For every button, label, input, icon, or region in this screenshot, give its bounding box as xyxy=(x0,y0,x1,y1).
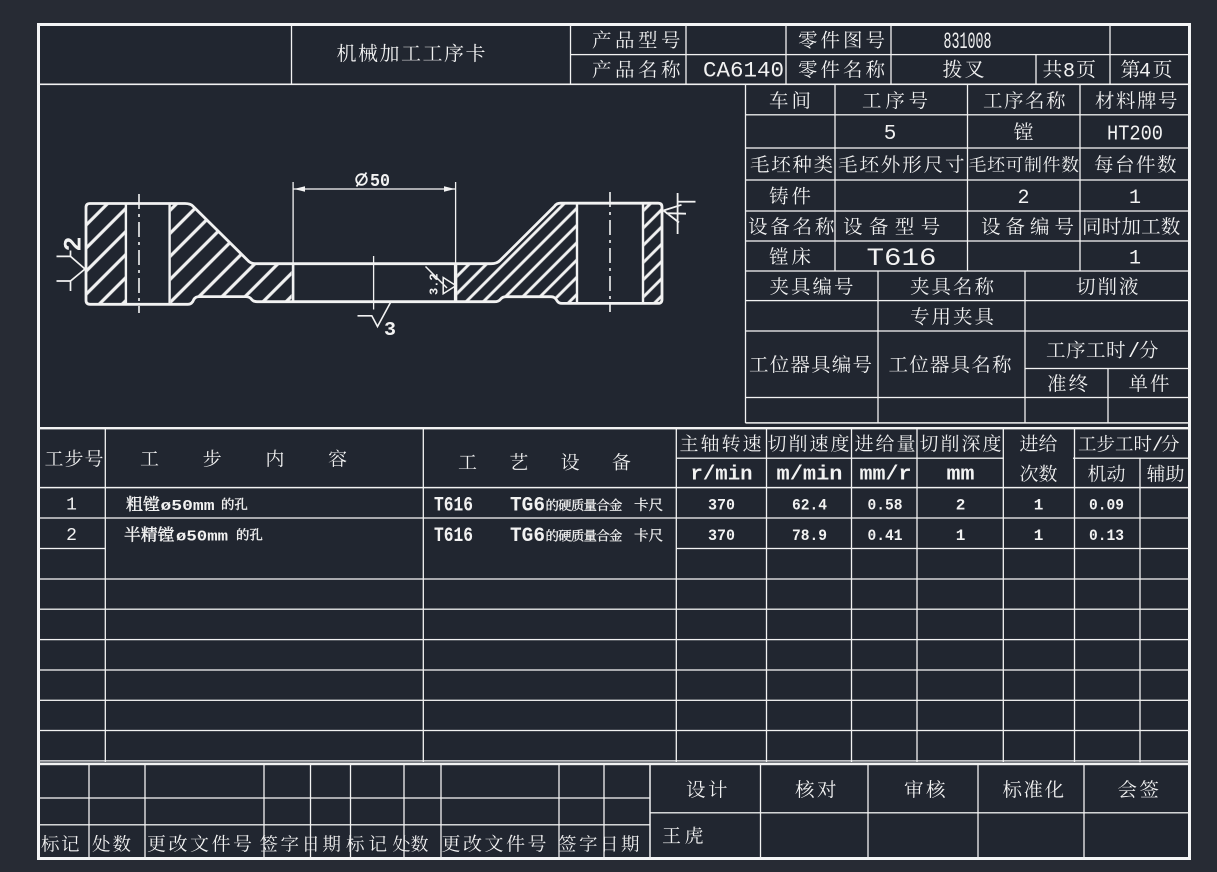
svg-text:3.2: 3.2 xyxy=(428,273,442,295)
svg-text:ø50mm: ø50mm xyxy=(176,529,228,546)
svg-text:1: 1 xyxy=(1034,497,1044,515)
svg-text:T616: T616 xyxy=(434,525,473,548)
svg-text:2: 2 xyxy=(66,526,77,546)
svg-text:1: 1 xyxy=(1129,187,1141,210)
svg-text:r/min: r/min xyxy=(691,464,753,487)
svg-text:1: 1 xyxy=(956,527,966,545)
svg-text:mm/r: mm/r xyxy=(860,464,912,487)
svg-text:2: 2 xyxy=(956,497,966,515)
svg-text:370: 370 xyxy=(708,527,735,545)
svg-text:TG6: TG6 xyxy=(510,495,545,518)
svg-text:0.41: 0.41 xyxy=(868,527,903,545)
svg-text:78.9: 78.9 xyxy=(792,527,827,545)
svg-text:0.58: 0.58 xyxy=(868,497,903,515)
svg-text:CA6140: CA6140 xyxy=(703,59,784,84)
svg-text:HT200: HT200 xyxy=(1107,124,1163,147)
svg-text:m/min: m/min xyxy=(777,464,843,487)
svg-text:mm: mm xyxy=(947,464,975,487)
svg-text:T616: T616 xyxy=(434,495,473,518)
svg-text:T616: T616 xyxy=(867,244,937,273)
svg-text:370: 370 xyxy=(708,497,735,515)
svg-text:2: 2 xyxy=(60,236,89,251)
svg-text:2: 2 xyxy=(1017,187,1029,210)
svg-text:8: 8 xyxy=(1063,61,1075,84)
svg-text:/: / xyxy=(1128,341,1140,364)
svg-text:3: 3 xyxy=(384,319,396,341)
svg-text:/: / xyxy=(1152,434,1163,456)
svg-text:831008: 831008 xyxy=(944,29,992,55)
svg-text:TG6: TG6 xyxy=(510,525,545,548)
svg-text:1: 1 xyxy=(66,496,77,516)
svg-text:4: 4 xyxy=(1139,61,1151,84)
svg-text:0.09: 0.09 xyxy=(1089,497,1124,515)
svg-text:1: 1 xyxy=(1129,248,1141,271)
svg-text:62.4: 62.4 xyxy=(792,497,827,515)
svg-text:1: 1 xyxy=(1034,527,1044,545)
svg-text:50: 50 xyxy=(370,172,390,192)
svg-text:ø50mm: ø50mm xyxy=(161,498,215,515)
svg-text:0.13: 0.13 xyxy=(1089,527,1124,545)
svg-text:5: 5 xyxy=(884,123,897,146)
